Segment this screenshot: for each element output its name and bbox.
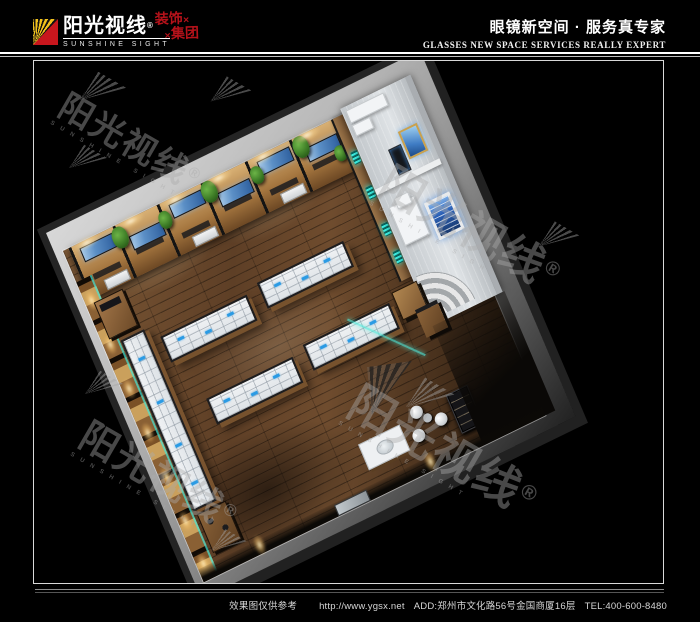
decoration-group-seal: 装饰✕ ✕集团 [154,11,199,43]
price-tag [138,356,145,362]
logo-cn-text: 阳光视线 [63,15,147,37]
price-tag [348,337,355,343]
registered-mark: ® [147,21,154,30]
header-divider-thin [0,56,700,57]
price-tag [274,281,281,287]
sunburst-watermark-icon [211,76,252,117]
price-tag [190,480,197,486]
wash-basin [374,437,396,458]
price-tag [369,320,376,326]
price-tag [177,335,184,341]
render-disclaimer: 效果图仅供参考 [229,601,297,612]
sunburst-watermark-icon [69,144,107,182]
sunshine-sight-logo-icon [33,19,58,45]
watermark-reg: ® [516,479,542,508]
sunburst-rays-icon [33,19,58,45]
price-tag [156,399,163,405]
header-divider-thick [0,52,700,54]
watermark-reg: ® [541,256,566,283]
group-word-bottom: 集团 [171,24,200,41]
slogan-english: GLASSES NEW SPACE SERVICES REALLY EXPERT [423,40,666,50]
logo-english-name: SUNSHINE SIGHT [63,38,170,48]
sunburst-watermark-icon [539,221,580,262]
render-frame: 阳光视线® SUNSHINE SIGHT 阳光视线® SUNSHINE SIGH… [33,60,664,584]
footer-contact-line: 效果图仅供参考http://www.ygsx.netADD:郑州市文化路56号金… [220,598,667,612]
slogan-block: 眼镜新空间 · 服务真专家 GLASSES NEW SPACE SERVICES… [423,16,666,50]
footer-divider-bottom [35,592,664,593]
company-phone: TEL:400-600-8480 [585,601,667,612]
sunburst-watermark-icon [80,71,126,117]
seal-mark: ✕ [183,16,190,25]
price-tag [323,258,330,264]
poster-page: { "header": { "logo": { "cn": "阳光视线", "r… [0,0,700,622]
price-tag [175,443,182,449]
website-url: http://www.ygsx.net [319,601,405,612]
cabinet-items [99,296,122,312]
header-bar: 阳光视线® SUNSHINE SIGHT 装饰✕ ✕集团 眼镜新空间 · 服务真… [0,0,700,52]
price-tag [223,397,230,403]
price-tag [319,343,326,349]
company-address: ADD:郑州市文化路56号金国商厦16层 [414,601,576,612]
footer-divider-top [35,589,664,590]
price-tag [251,391,258,397]
price-tag [273,373,280,379]
store-floorplan [63,84,545,582]
price-tag [227,311,234,317]
slogan-chinese: 眼镜新空间 · 服务真专家 [423,16,666,37]
price-tag [302,275,309,281]
price-tag [205,329,212,335]
